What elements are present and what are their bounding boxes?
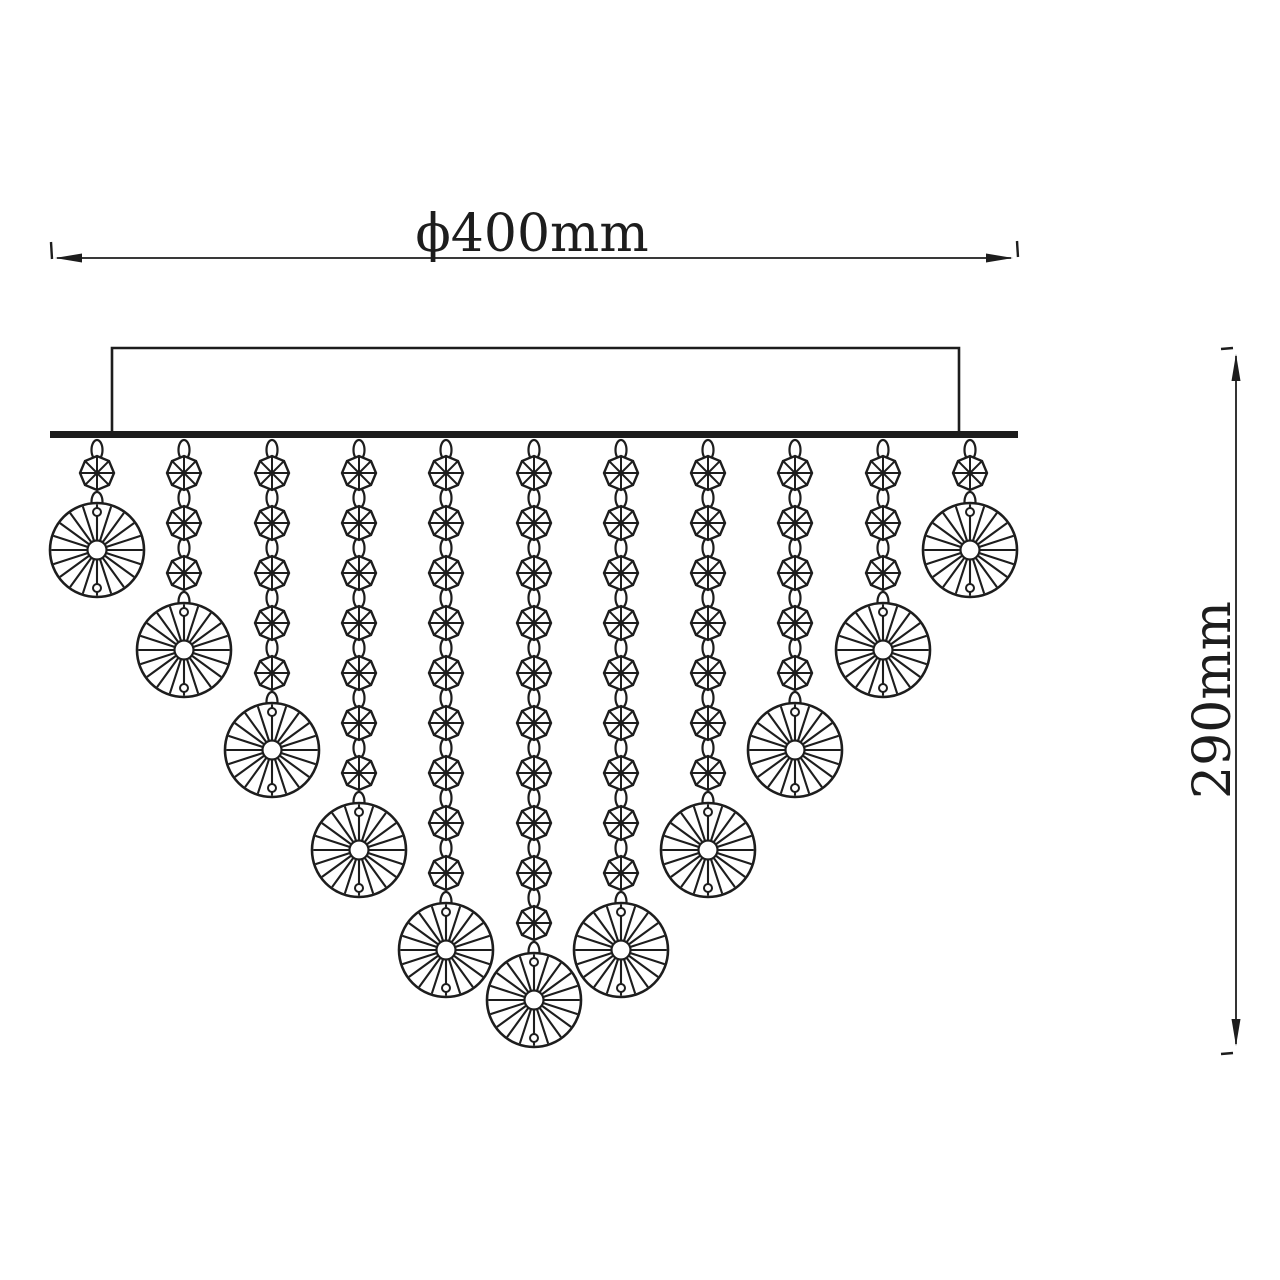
octagon-bead [429, 856, 463, 890]
octagon-bead [429, 606, 463, 640]
strand-7 [574, 440, 668, 997]
disc-top-hole [530, 958, 538, 966]
octagon-bead [517, 506, 551, 540]
diameter-dimension-label: ϕ400mm [415, 204, 648, 264]
octagon-bead [429, 456, 463, 490]
disc-top-hole [442, 908, 450, 916]
disc-center-hub [874, 641, 893, 660]
strand-2 [137, 440, 231, 697]
octagon-bead [517, 456, 551, 490]
chandelier-dimension-drawing: ϕ400mm 290mm [0, 0, 1280, 1280]
octagon-bead [517, 906, 551, 940]
octagon-bead [429, 706, 463, 740]
sunburst-disc [225, 703, 319, 797]
octagon-bead [604, 606, 638, 640]
strand-9 [748, 440, 842, 797]
disc-bottom-hole [442, 984, 450, 992]
disc-bottom-hole [180, 684, 188, 692]
canopy-box [112, 348, 959, 433]
sunburst-disc [836, 603, 930, 697]
disc-bottom-hole [617, 984, 625, 992]
disc-center-hub [175, 641, 194, 660]
octagon-bead [255, 556, 289, 590]
disc-top-hole [355, 808, 363, 816]
octagon-bead [691, 706, 725, 740]
octagon-bead [255, 656, 289, 690]
octagon-bead [778, 556, 812, 590]
octagon-bead [167, 556, 201, 590]
disc-center-hub [437, 941, 456, 960]
disc-bottom-hole [530, 1034, 538, 1042]
octagon-bead [255, 456, 289, 490]
octagon-bead [342, 456, 376, 490]
sunburst-disc [50, 503, 144, 597]
octagon-bead [255, 506, 289, 540]
disc-center-hub [88, 541, 107, 560]
sunburst-disc [661, 803, 755, 897]
octagon-bead [517, 556, 551, 590]
octagon-bead [342, 556, 376, 590]
disc-top-hole [879, 608, 887, 616]
disc-bottom-hole [966, 584, 974, 592]
octagon-bead [342, 606, 376, 640]
octagon-bead [517, 706, 551, 740]
sunburst-disc [487, 953, 581, 1047]
octagon-bead [255, 606, 289, 640]
octagon-bead [342, 706, 376, 740]
disc-center-hub [263, 741, 282, 760]
octagon-bead [604, 856, 638, 890]
strand-8 [661, 440, 755, 897]
disc-center-hub [525, 991, 544, 1010]
disc-top-hole [93, 508, 101, 516]
octagon-bead [604, 706, 638, 740]
octagon-bead [778, 656, 812, 690]
octagon-bead [167, 456, 201, 490]
disc-top-hole [966, 508, 974, 516]
sunburst-disc [748, 703, 842, 797]
octagon-bead [691, 506, 725, 540]
octagon-bead [866, 556, 900, 590]
octagon-bead [604, 656, 638, 690]
height-dimension-label: 290mm [1183, 601, 1243, 799]
disc-center-hub [786, 741, 805, 760]
sunburst-disc [399, 903, 493, 997]
octagon-bead [517, 856, 551, 890]
disc-top-hole [180, 608, 188, 616]
strand-4 [312, 440, 406, 897]
octagon-bead [429, 756, 463, 790]
octagon-bead [604, 806, 638, 840]
octagon-bead [604, 456, 638, 490]
octagon-bead [778, 606, 812, 640]
disc-bottom-hole [355, 884, 363, 892]
disc-bottom-hole [791, 784, 799, 792]
sunburst-disc [137, 603, 231, 697]
strand-3 [225, 440, 319, 797]
octagon-bead [778, 506, 812, 540]
octagon-bead [604, 506, 638, 540]
octagon-bead [778, 456, 812, 490]
octagon-bead [429, 656, 463, 690]
disc-bottom-hole [879, 684, 887, 692]
octagon-bead [167, 506, 201, 540]
disc-top-hole [268, 708, 276, 716]
octagon-bead [604, 756, 638, 790]
strand-1 [50, 440, 144, 597]
octagon-bead [866, 506, 900, 540]
strand-6 [487, 440, 581, 1047]
octagon-bead [342, 656, 376, 690]
disc-center-hub [699, 841, 718, 860]
octagon-bead [866, 456, 900, 490]
sunburst-disc [923, 503, 1017, 597]
strand-10 [836, 440, 930, 697]
octagon-bead [691, 756, 725, 790]
octagon-bead [429, 506, 463, 540]
octagon-bead [429, 556, 463, 590]
octagon-bead [691, 656, 725, 690]
mounting-plate-bar [50, 431, 1018, 438]
sunburst-disc [574, 903, 668, 997]
strand-11 [923, 440, 1017, 597]
octagon-bead [691, 456, 725, 490]
octagon-bead [691, 606, 725, 640]
disc-center-hub [350, 841, 369, 860]
octagon-bead [517, 656, 551, 690]
octagon-bead [429, 806, 463, 840]
dimension-drawing-page: ϕ400mm 290mm [0, 0, 1280, 1280]
octagon-bead [517, 756, 551, 790]
octagon-bead [517, 606, 551, 640]
disc-top-hole [791, 708, 799, 716]
sunburst-disc [312, 803, 406, 897]
octagon-bead [342, 756, 376, 790]
disc-bottom-hole [93, 584, 101, 592]
octagon-bead [517, 806, 551, 840]
octagon-bead [342, 506, 376, 540]
disc-top-hole [617, 908, 625, 916]
octagon-bead [691, 556, 725, 590]
octagon-bead [604, 556, 638, 590]
disc-center-hub [612, 941, 631, 960]
disc-top-hole [704, 808, 712, 816]
octagon-bead [953, 456, 987, 490]
strand-5 [399, 440, 493, 997]
disc-bottom-hole [704, 884, 712, 892]
disc-bottom-hole [268, 784, 276, 792]
octagon-bead [80, 456, 114, 490]
disc-center-hub [961, 541, 980, 560]
